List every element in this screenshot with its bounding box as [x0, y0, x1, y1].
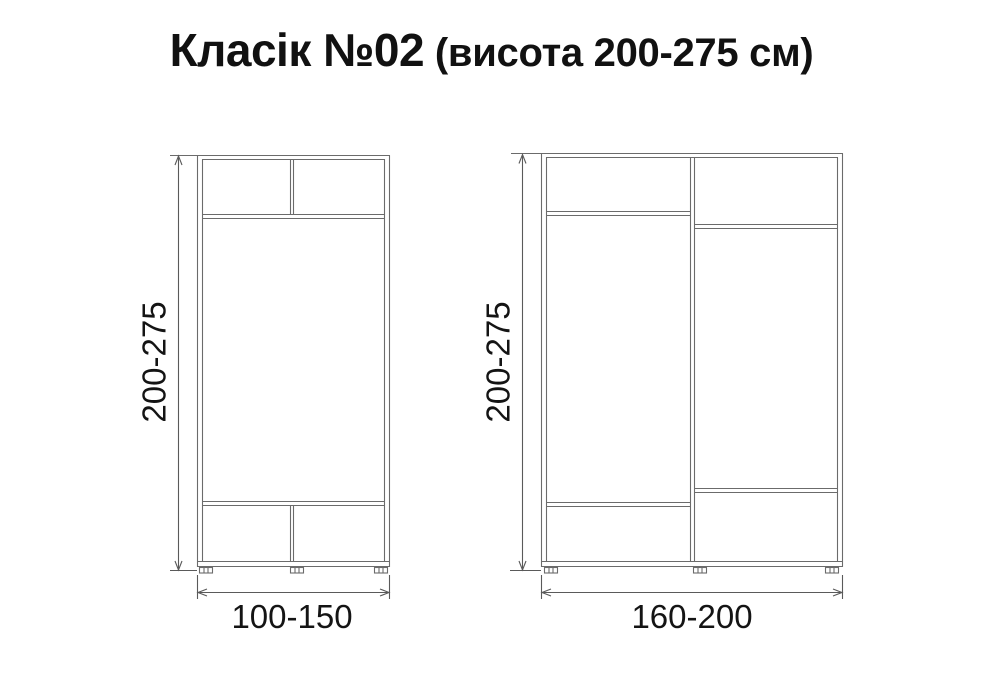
right-height-label: 200-275 — [480, 301, 517, 422]
wardrobe-right-outline — [511, 154, 843, 574]
right-width-label: 160-200 — [631, 598, 752, 635]
wardrobe-right-dimensions — [510, 155, 843, 600]
diagram-canvas: Класік №02 (висота 200-275 см) — [0, 0, 983, 700]
adjustable-foot — [826, 568, 839, 574]
adjustable-foot — [291, 568, 304, 574]
left-width-label: 100-150 — [231, 598, 352, 635]
left-height-label: 200-275 — [136, 301, 173, 422]
adjustable-foot — [200, 568, 213, 574]
adjustable-foot — [375, 568, 388, 574]
adjustable-foot — [694, 568, 707, 574]
wardrobe-left-outline — [170, 156, 390, 574]
adjustable-foot — [545, 568, 558, 574]
wardrobe-drawings: 200-275 100-150 — [0, 0, 983, 700]
